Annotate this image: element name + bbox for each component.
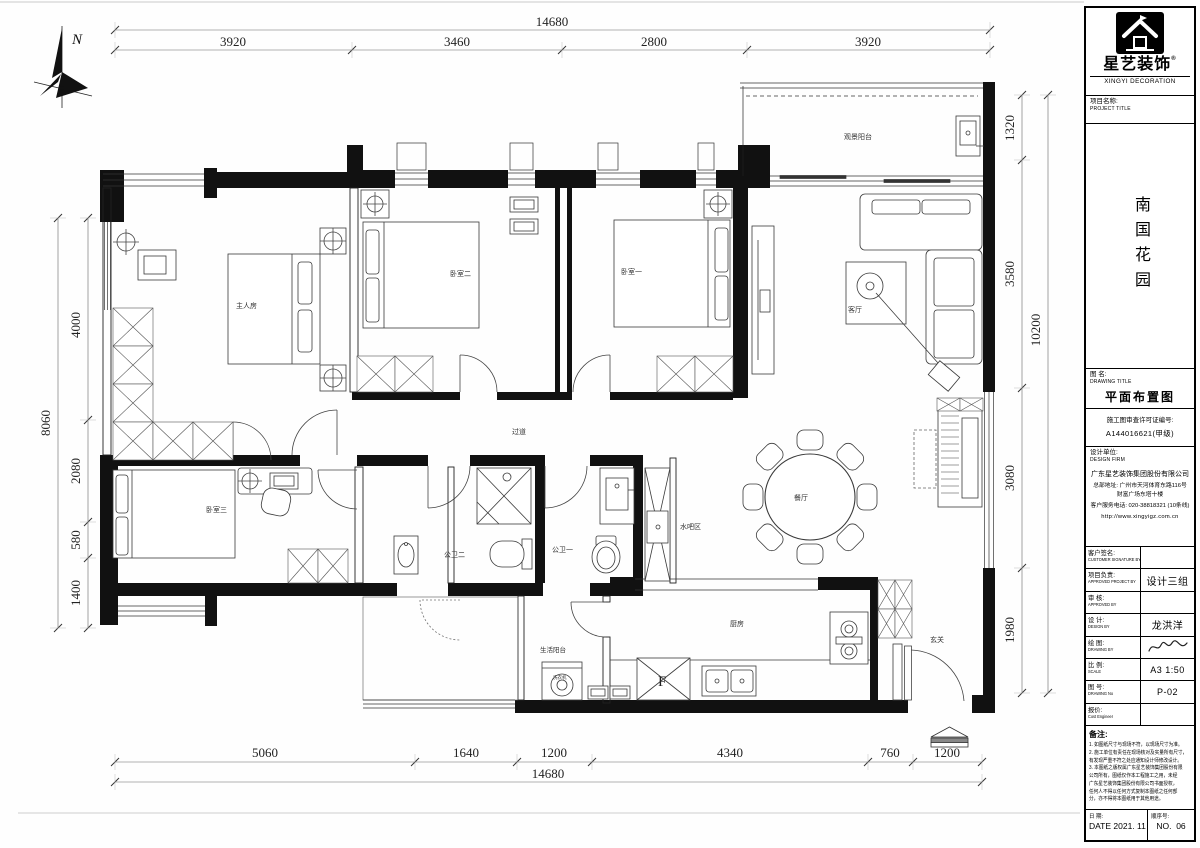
note-line: 广东星艺装饰集团股份有限公司书面授权， [1089, 781, 1184, 789]
floor-plan-canvas: N [0, 0, 1084, 848]
notes-section: 备注: 1. 如图纸尺寸与现场不符，以现场尺寸为准。 2. 施工单位有责任在现场… [1086, 726, 1194, 810]
fridge-label: F [658, 674, 666, 690]
dresser-master [138, 250, 176, 280]
dim-bottom-1: 1640 [453, 745, 479, 760]
dim-right-2: 3080 [1002, 465, 1017, 491]
note-line: 2. 施工单位有责任在现场核对及实量所有尺寸， [1089, 750, 1184, 758]
dim-bottom-0: 5060 [252, 745, 278, 760]
note-line: 有发现严重不符之处应通知设计师修改设计。 [1089, 758, 1184, 766]
drawing-label-en: DRAWING TITLE [1090, 379, 1132, 386]
firm-label-en: DESIGN FIRM [1090, 457, 1190, 464]
row-value [1141, 547, 1194, 568]
row-drawing-no: 图 号:DRAWING No P-02 [1086, 681, 1194, 703]
tv-cabinet-living [752, 226, 774, 374]
drawing-sheet: N [0, 0, 1200, 848]
project-name-section: 南国花园 [1086, 124, 1194, 369]
row-label-cn: 设 计: [1088, 615, 1138, 624]
dim-left-1: 2080 [68, 458, 83, 484]
design-firm-section: 设计单位: DESIGN FIRM 广东星艺装饰集团股份有限公司 总部地址: 广… [1086, 447, 1194, 547]
washbasin-bath2 [394, 536, 418, 574]
row-label-cn: 图 号: [1088, 682, 1138, 691]
toilet-bath1 [592, 536, 620, 573]
row-label-cn: 报价: [1088, 705, 1138, 714]
dim-left-total: 8060 [38, 410, 53, 436]
vanity-bath1 [600, 468, 634, 524]
dim-right-1: 3580 [1002, 261, 1017, 287]
dim-left-0: 4000 [68, 312, 83, 338]
room-label-corridor: 过道 [512, 427, 526, 436]
firm-phone: 客户服务电话: 020-38818321 (10条线) [1090, 502, 1190, 511]
xingyi-logo-icon [1116, 12, 1164, 54]
firm-name: 广东星艺装饰集团股份有限公司 [1090, 469, 1190, 479]
dim-top-0: 3920 [220, 34, 246, 49]
tv-shelf-bedroom2 [510, 197, 538, 234]
room-label-dining: 餐厅 [794, 493, 808, 502]
project-title-section: 项目名称: PROJECT TITLE [1086, 96, 1194, 124]
floor-drains [588, 686, 630, 699]
row-value: P-02 [1141, 681, 1194, 702]
washer-label: 洗衣机 [553, 674, 567, 681]
dim-bottom-4: 760 [880, 745, 900, 760]
notes-title: 备注: [1089, 729, 1191, 740]
firm-website: http://www.xingyigz.com.cn [1090, 514, 1190, 520]
dim-top-2: 2800 [641, 34, 667, 49]
project-name: 南国花园 [1128, 196, 1152, 296]
room-label-bedroom3: 卧室三 [206, 505, 227, 514]
room-label-bedroom1: 卧室一 [621, 267, 642, 276]
dim-bottom-5: 1200 [934, 745, 960, 760]
dim-bottom-3: 4340 [717, 745, 743, 760]
date-label-cn: 日 期: [1089, 814, 1103, 820]
washing-machine [542, 662, 582, 700]
toilet-bath2 [490, 539, 532, 569]
row-label-en: APPROVED PROJECT BY [1088, 579, 1134, 584]
row-customer-signature: 客户签名:CUSTOMER SIGNATURE BY [1086, 547, 1194, 569]
row-value [1141, 592, 1194, 613]
row-label-en: DRAWING No [1088, 691, 1134, 696]
note-line: 公司所有，图纸仅作本工程施工之用，未经 [1089, 773, 1184, 781]
row-value: 设计三组 [1141, 569, 1194, 590]
row-value [1141, 704, 1194, 725]
row-design-by: 设 计:DESIGN BY 龙洪洋 [1086, 614, 1194, 636]
dim-top-3: 3920 [855, 34, 881, 49]
registered-mark: ® [1171, 56, 1176, 62]
waterbar-cabinet [645, 468, 670, 581]
row-approved-by: 审 核:APPROVED BY [1086, 592, 1194, 614]
room-labels: 主人房 卧室二 卧室一 卧室三 客厅 餐厅 厨房 玄关 过道 公卫一 公卫二 水… [206, 132, 944, 690]
stove [830, 612, 868, 664]
signature-scribble [1141, 637, 1194, 658]
row-label-en: SCALE [1088, 669, 1134, 674]
room-label-master: 主人房 [236, 301, 257, 310]
date-cell: 日 期: DATE 2021. 11 [1086, 810, 1148, 840]
title-block: 星艺装饰® XINGYI DECORATION 项目名称: PROJECT TI… [1084, 6, 1196, 842]
entry-canopy-icon [931, 727, 968, 747]
row-scale: 比 例:SCALE A3 1:50 [1086, 659, 1194, 681]
row-label-en: DRAWING BY [1088, 647, 1134, 652]
row-label-en: Cost Engineer [1088, 714, 1134, 719]
north-arrow-icon: N [34, 26, 92, 108]
dim-top-total: 14680 [536, 14, 569, 29]
firm-label-cn: 设计单位: [1090, 449, 1190, 457]
date-value: 2021. 11 [1113, 821, 1145, 831]
signature-rows: 客户签名:CUSTOMER SIGNATURE BY 项目负责:APPROVED… [1086, 547, 1194, 726]
desk-bedroom3 [238, 468, 312, 518]
row-value: A3 1:50 [1141, 659, 1194, 680]
room-label-living: 客厅 [848, 305, 862, 314]
dim-right-0: 1320 [1002, 115, 1017, 141]
firm-address2: 财富广场东塔十楼 [1090, 491, 1190, 500]
note-line: 任何人不得以任何方式复制本图纸之任何部 [1089, 789, 1184, 797]
dim-bottom-2: 1200 [541, 745, 567, 760]
drawing-title: 平面布置图 [1090, 388, 1190, 405]
balcony-sink [956, 116, 984, 156]
row-drawing-by: 绘 图:DRAWING BY [1086, 637, 1194, 659]
row-cost-engineer: 报价:Cost Engineer [1086, 704, 1194, 725]
shower-bath2 [477, 468, 531, 524]
north-label: N [71, 32, 83, 48]
note-line: 1. 如图纸尺寸与现场不符，以现场尺寸为准。 [1089, 742, 1184, 750]
row-project-lead: 项目负责:APPROVED PROJECT BY 设计三组 [1086, 569, 1194, 591]
dim-bottom-total: 14680 [532, 766, 565, 781]
dim-right-3: 1980 [1002, 617, 1017, 643]
room-label-bedroom2: 卧室二 [450, 269, 471, 278]
no-label-en: NO. [1156, 821, 1171, 831]
note-line: 3. 本图纸之版权属广东星艺装饰集团股份有限 [1089, 765, 1184, 773]
row-label-en: CUSTOMER SIGNATURE BY [1088, 557, 1134, 562]
row-label-cn: 客户签名: [1088, 548, 1138, 557]
row-label-cn: 审 核: [1088, 593, 1138, 602]
room-label-bath1: 公卫一 [552, 546, 573, 554]
sheet-no-cell: 顺序号: NO. 06 [1148, 810, 1194, 840]
row-value: 龙洪洋 [1141, 614, 1194, 635]
brand-section: 星艺装饰® XINGYI DECORATION [1086, 8, 1194, 96]
footer-section: 日 期: DATE 2021. 11 顺序号: NO. 06 [1086, 810, 1194, 840]
date-label-en: DATE [1089, 821, 1111, 831]
project-label-en: PROJECT TITLE [1090, 106, 1190, 113]
brand-name-en: XINGYI DECORATION [1090, 76, 1190, 85]
project-label-cn: 项目名称: [1090, 98, 1190, 106]
room-label-bath2: 公卫二 [444, 551, 465, 559]
room-label-view-balcony: 观景阳台 [844, 132, 872, 141]
brand-name-cn: 星艺装饰® [1090, 56, 1190, 74]
note-line: 分，亦不得将本图纸用于其他用途。 [1089, 796, 1184, 804]
row-label-cn: 比 例: [1088, 660, 1138, 669]
dim-left-3: 1400 [68, 580, 83, 606]
drawing-label-cn: 图 名: [1090, 371, 1132, 379]
dim-left-2: 580 [68, 530, 83, 550]
no-value: 06 [1176, 821, 1185, 831]
room-label-waterbar: 水吧区 [680, 522, 701, 531]
dining-side-cabinet [914, 410, 982, 507]
bed-bedroom3 [113, 470, 235, 558]
firm-address1: 总部地址: 广州市天河体育东路116号 [1090, 482, 1190, 491]
dining-table [765, 454, 855, 540]
room-label-entry: 玄关 [930, 635, 944, 644]
drawing-title-section: 图 名: DRAWING TITLE 平面布置图 [1086, 369, 1194, 409]
room-label-utility-balcony: 生活阳台 [540, 645, 566, 654]
row-label-cn: 项目负责: [1088, 570, 1138, 579]
license-number: A144016621(甲级) [1090, 428, 1190, 439]
dim-right-total: 10200 [1028, 314, 1043, 347]
license-section: 施工图审查许可证编号: A144016621(甲级) [1086, 409, 1194, 447]
row-label-en: APPROVED BY [1088, 602, 1134, 607]
row-label-cn: 绘 图: [1088, 638, 1138, 647]
dim-top-1: 3460 [444, 34, 470, 49]
room-label-kitchen: 厨房 [730, 619, 744, 628]
row-label-en: DESIGN BY [1088, 624, 1134, 629]
entry-shoe-cabinet [893, 644, 902, 700]
no-label-cn: 顺序号: [1151, 814, 1169, 820]
license-label: 施工图审查许可证编号: [1090, 414, 1190, 424]
